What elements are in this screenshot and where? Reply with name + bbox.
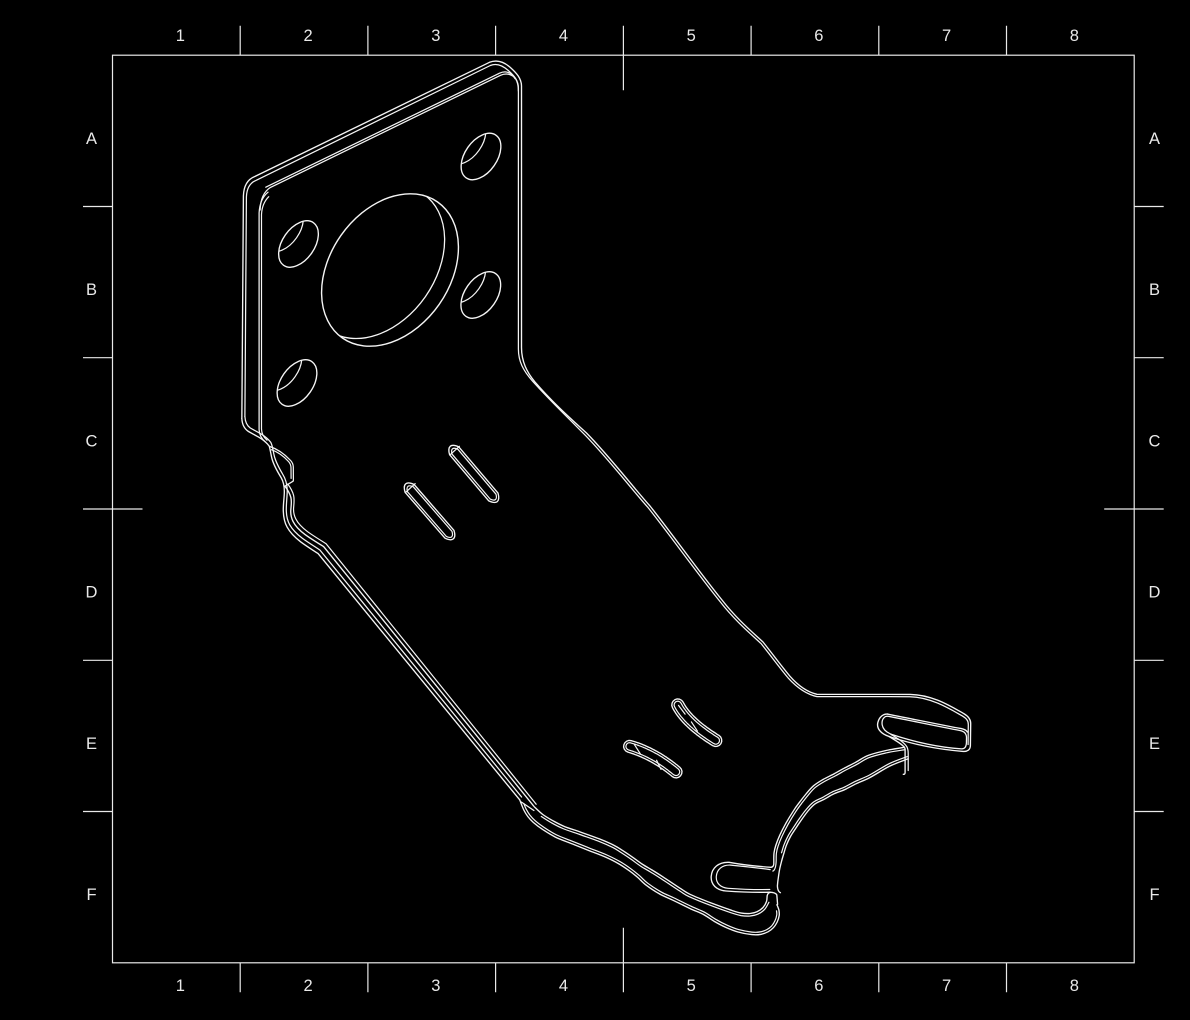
svg-text:2: 2 — [304, 977, 313, 995]
svg-text:4: 4 — [559, 27, 568, 45]
svg-text:7: 7 — [942, 27, 951, 45]
svg-text:A: A — [86, 130, 97, 148]
svg-text:5: 5 — [687, 27, 696, 45]
svg-text:F: F — [1149, 886, 1159, 904]
svg-text:8: 8 — [1070, 977, 1079, 995]
svg-text:5: 5 — [687, 977, 696, 995]
svg-text:2: 2 — [304, 27, 313, 45]
svg-text:E: E — [86, 735, 97, 753]
svg-text:1: 1 — [176, 977, 185, 995]
svg-text:C: C — [86, 432, 98, 450]
svg-text:D: D — [1149, 584, 1161, 602]
svg-text:B: B — [1149, 281, 1160, 299]
svg-text:D: D — [86, 584, 98, 602]
svg-text:E: E — [1149, 735, 1160, 753]
svg-text:B: B — [86, 281, 97, 299]
svg-text:3: 3 — [431, 27, 440, 45]
svg-text:7: 7 — [942, 977, 951, 995]
svg-text:A: A — [1149, 130, 1160, 148]
svg-text:F: F — [86, 886, 96, 904]
svg-text:8: 8 — [1070, 27, 1079, 45]
svg-text:6: 6 — [814, 977, 823, 995]
svg-text:3: 3 — [431, 977, 440, 995]
svg-text:1: 1 — [176, 27, 185, 45]
svg-text:4: 4 — [559, 977, 568, 995]
svg-text:C: C — [1149, 432, 1161, 450]
svg-text:6: 6 — [814, 27, 823, 45]
